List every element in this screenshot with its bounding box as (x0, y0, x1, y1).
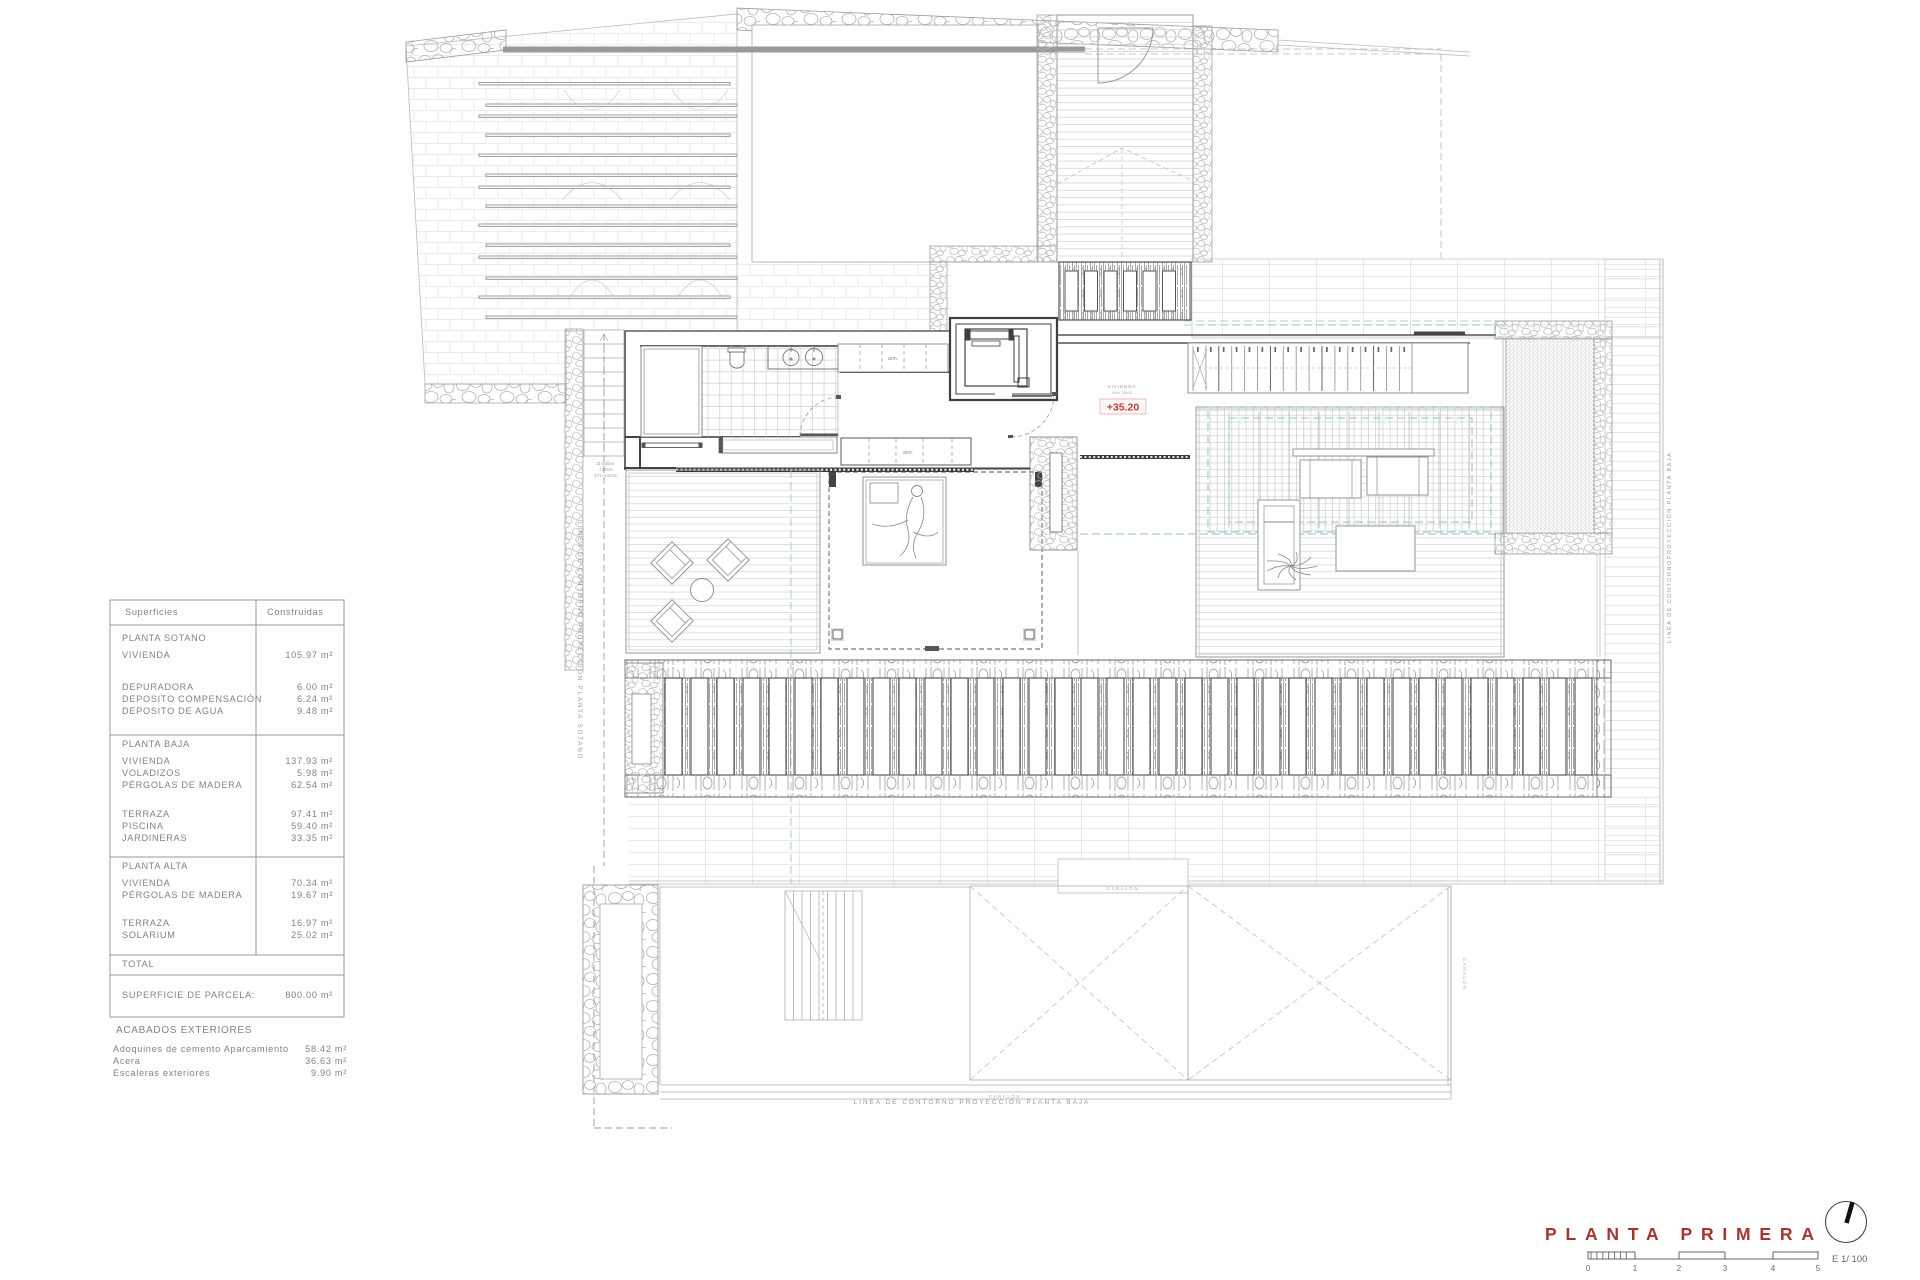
svg-text:LINEA DE CONTORNO PROYECCIÓN P: LINEA DE CONTORNO PROYECCIÓN PLANTA BAJA (854, 1097, 1091, 1106)
svg-text:800.00 m²: 800.00 m² (285, 990, 333, 1000)
svg-text:JARDINERAS: JARDINERAS (122, 833, 187, 843)
svg-text:TERRAZA: TERRAZA (122, 809, 170, 819)
svg-text:arm.: arm. (888, 356, 898, 362)
svg-text:PÉRGOLAS DE MADERA: PÉRGOLAS DE MADERA (122, 780, 242, 790)
svg-text:VIVIENDA: VIVIENDA (122, 878, 171, 888)
svg-text:3: 3 (1723, 1264, 1728, 1273)
svg-text:59.40 m²: 59.40 m² (291, 821, 333, 831)
svg-text:Escaleras exteriores: Escaleras exteriores (113, 1068, 210, 1078)
svg-text:16.97 m²: 16.97 m² (291, 918, 333, 928)
svg-text:TOTAL: TOTAL (122, 959, 154, 969)
svg-text:19.67 m²: 19.67 m² (291, 890, 333, 900)
svg-text:97.41 m²: 97.41 m² (291, 809, 333, 819)
svg-text:5: 5 (1816, 1264, 1821, 1273)
svg-text:E 1/ 100: E 1/ 100 (1832, 1254, 1867, 1265)
svg-text:5.98 m²: 5.98 m² (297, 768, 333, 778)
svg-text:58.42 m²: 58.42 m² (305, 1044, 347, 1054)
svg-text:9.48 m²: 9.48 m² (297, 706, 333, 716)
svg-text:137.93 m²: 137.93 m² (285, 756, 333, 766)
svg-text:6.00 m²: 6.00 m² (297, 682, 333, 692)
svg-text:VIVIENDA: VIVIENDA (1107, 384, 1136, 389)
svg-text:25.02 m²: 25.02 m² (291, 930, 333, 940)
svg-text:VOLADIZOS: VOLADIZOS (122, 768, 181, 778)
svg-text:ACABADOS EXTERIORES: ACABADOS EXTERIORES (116, 1025, 252, 1036)
svg-text:33.35 m²: 33.35 m² (291, 833, 333, 843)
svg-text:Adoquines de cemento Aparcamie: Adoquines de cemento Aparcamiento (113, 1044, 289, 1054)
svg-text:11 tablas: 11 tablas (596, 461, 615, 466)
svg-text:36.63 m²: 36.63 m² (305, 1056, 347, 1066)
svg-text:TERRAZA: TERRAZA (122, 918, 170, 928)
svg-text:62.54 m²: 62.54 m² (291, 780, 333, 790)
svg-text:+35.20: +35.20 (1107, 402, 1140, 414)
svg-text:VIVIENDA: VIVIENDA (122, 756, 171, 766)
svg-text:105.97 m²: 105.97 m² (285, 650, 333, 660)
svg-text:6.24 m²: 6.24 m² (297, 694, 333, 704)
svg-text:Superficies: Superficies (125, 607, 178, 617)
svg-text:4: 4 (1771, 1264, 1776, 1273)
svg-text:LINEA DE CONTORNO PROYECCIÓN P: LINEA DE CONTORNO PROYECCIÓN PLANTA SOTA… (576, 522, 583, 760)
svg-text:9.90 m²: 9.90 m² (311, 1068, 347, 1078)
svg-text:PLANTA ALTA: PLANTA ALTA (122, 861, 188, 871)
svg-text:0: 0 (1586, 1264, 1591, 1273)
svg-text:70.34 m²: 70.34 m² (291, 878, 333, 888)
svg-text:SOLARIUM: SOLARIUM (122, 930, 176, 940)
svg-text:VIVIENDA: VIVIENDA (122, 650, 171, 660)
svg-text:arm.: arm. (903, 450, 913, 456)
svg-text:Construidas: Construidas (267, 607, 324, 617)
svg-text:1: 1 (1633, 1264, 1638, 1273)
svg-text:471+422cm: 471+422cm (594, 473, 618, 478)
svg-text:PÉRGOLAS DE MADERA: PÉRGOLAS DE MADERA (122, 890, 242, 900)
svg-text:DEPURADORA: DEPURADORA (122, 682, 194, 692)
svg-text:2: 2 (1677, 1264, 1682, 1273)
svg-text:Acera: Acera (113, 1056, 141, 1066)
svg-text:PISCINA: PISCINA (122, 821, 164, 831)
svg-text:CANALÓN: CANALÓN (1462, 958, 1468, 990)
svg-text:SUPERFICIE DE PARCELA:: SUPERFICIE DE PARCELA: (122, 990, 255, 1000)
svg-text:LINEA DE CONTORNOPROYECCIÓN PL: LINEA DE CONTORNOPROYECCIÓN PLANTA BAJA (1666, 452, 1673, 643)
svg-text:DEPOSITO COMPENSACIÓN: DEPOSITO COMPENSACIÓN (122, 694, 262, 704)
svg-text:PLANTA PRIMERA: PLANTA PRIMERA (1545, 1224, 1823, 1244)
svg-text:+20cm: +20cm (599, 467, 613, 472)
svg-text:PLANTA BAJA: PLANTA BAJA (122, 739, 190, 749)
svg-text:N.M. 35m2: N.M. 35m2 (1112, 390, 1132, 395)
svg-text:DEPOSITO DE AGUA: DEPOSITO DE AGUA (122, 706, 224, 716)
svg-text:PLANTA SOTANO: PLANTA SOTANO (122, 633, 206, 643)
